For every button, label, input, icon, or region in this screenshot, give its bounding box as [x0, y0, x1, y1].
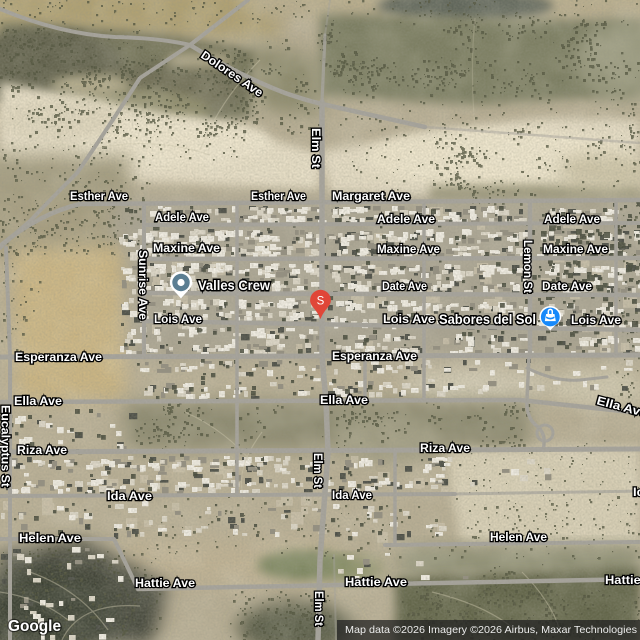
svg-text:Adele Ave: Adele Ave [544, 212, 600, 226]
svg-text:Riza Ave: Riza Ave [17, 443, 67, 457]
svg-text:Hattie Ave: Hattie Ave [135, 576, 195, 590]
svg-text:Maxine Ave: Maxine Ave [543, 242, 608, 256]
svg-text:Sunrise Ave: Sunrise Ave [136, 250, 150, 320]
svg-text:Google: Google [8, 618, 61, 635]
svg-text:Eucalyptus St: Eucalyptus St [0, 405, 13, 487]
svg-text:Lemon St: Lemon St [521, 240, 535, 293]
svg-text:Maxine Ave: Maxine Ave [377, 242, 440, 256]
svg-text:Lois Ave: Lois Ave [571, 313, 621, 327]
svg-text:Date Ave: Date Ave [542, 279, 592, 293]
svg-text:Lois Ave: Lois Ave [383, 312, 435, 326]
svg-text:Date Ave: Date Ave [382, 279, 427, 293]
svg-text:Esther Ave: Esther Ave [251, 189, 306, 203]
svg-text:Lois Ave: Lois Ave [154, 312, 202, 326]
svg-text:Margaret Ave: Margaret Ave [332, 189, 410, 203]
svg-text:Hattie Ave: Hattie Ave [345, 575, 407, 589]
svg-text:Elm St: Elm St [309, 128, 323, 168]
svg-text:Ella Ave: Ella Ave [14, 394, 62, 408]
svg-text:Elm St: Elm St [312, 591, 326, 626]
svg-text:Helen Ave: Helen Ave [490, 530, 547, 544]
svg-text:Elm St: Elm St [311, 453, 325, 488]
svg-text:Ella Ave: Ella Ave [320, 393, 368, 407]
svg-text:Ida Ave: Ida Ave [633, 485, 640, 499]
svg-text:Esperanza Ave: Esperanza Ave [332, 349, 417, 363]
svg-text:Riza Ave: Riza Ave [420, 441, 470, 455]
svg-text:Map data ©2026 Imagery ©2026 A: Map data ©2026 Imagery ©2026 Airbus, Max… [345, 624, 637, 636]
svg-text:Ida Ave: Ida Ave [107, 489, 152, 503]
svg-text:Hattie Ave: Hattie Ave [605, 573, 640, 587]
svg-text:Ida Ave: Ida Ave [332, 488, 372, 502]
svg-text:Maxine Ave: Maxine Ave [153, 241, 220, 255]
svg-text:Adele Ave: Adele Ave [377, 212, 435, 226]
svg-text:S: S [317, 295, 325, 307]
svg-text:Esperanza Ave: Esperanza Ave [15, 350, 102, 364]
svg-text:Valles Crew: Valles Crew [198, 277, 270, 293]
svg-text:Helen Ave: Helen Ave [19, 531, 81, 545]
svg-text:Esther Ave: Esther Ave [70, 189, 128, 203]
svg-text:Sabores del Sol: Sabores del Sol [439, 311, 536, 327]
svg-text:Adele Ave: Adele Ave [155, 210, 209, 224]
